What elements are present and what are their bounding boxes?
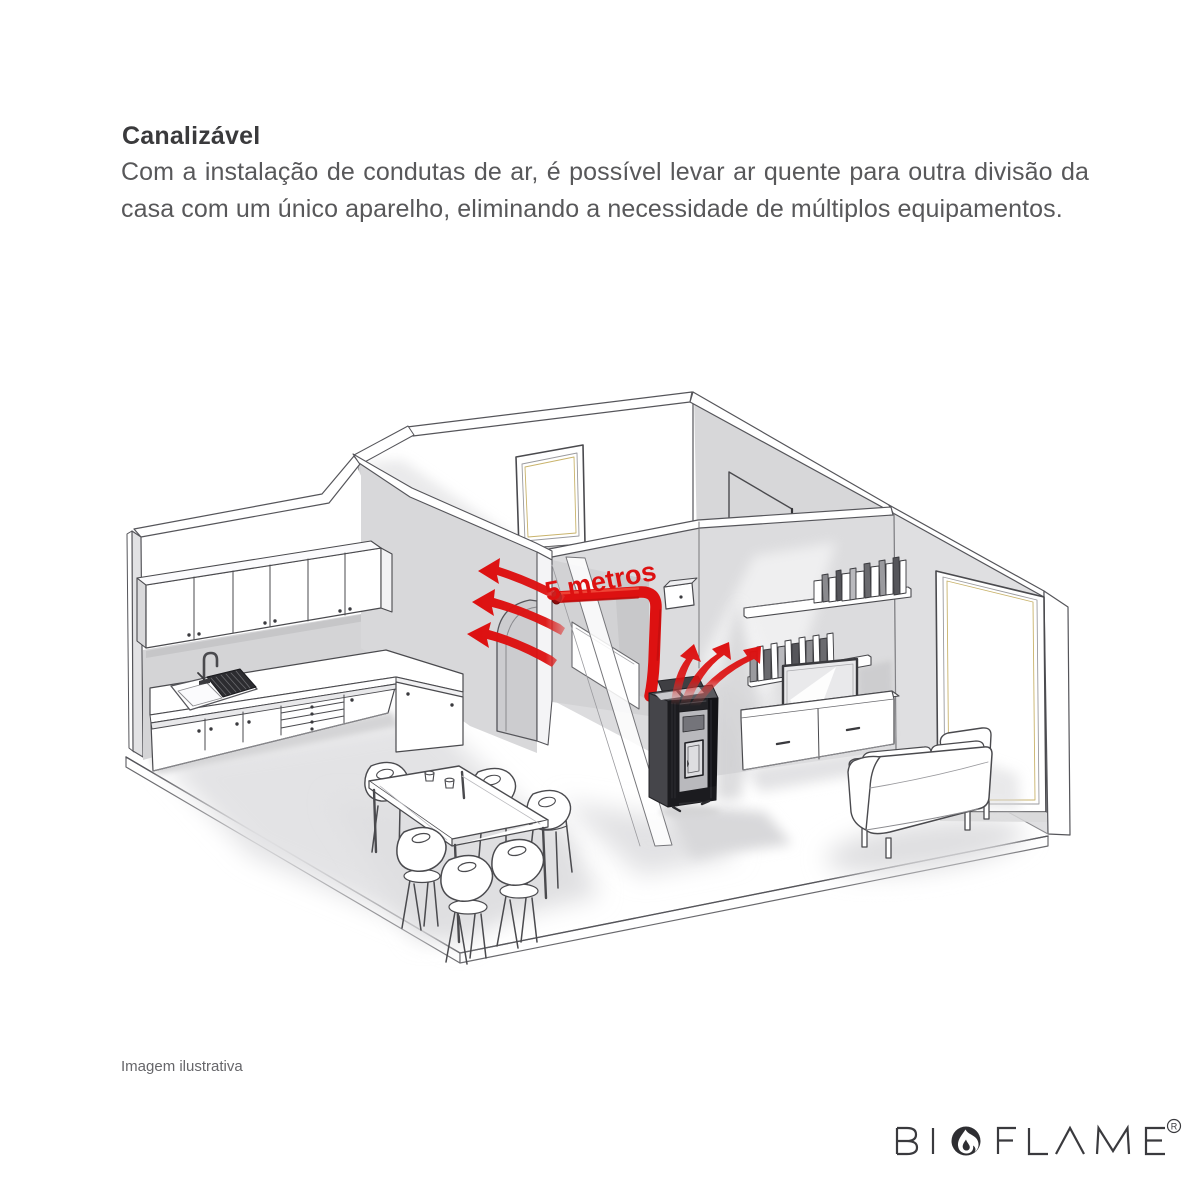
svg-text:R: R bbox=[1171, 1122, 1178, 1132]
